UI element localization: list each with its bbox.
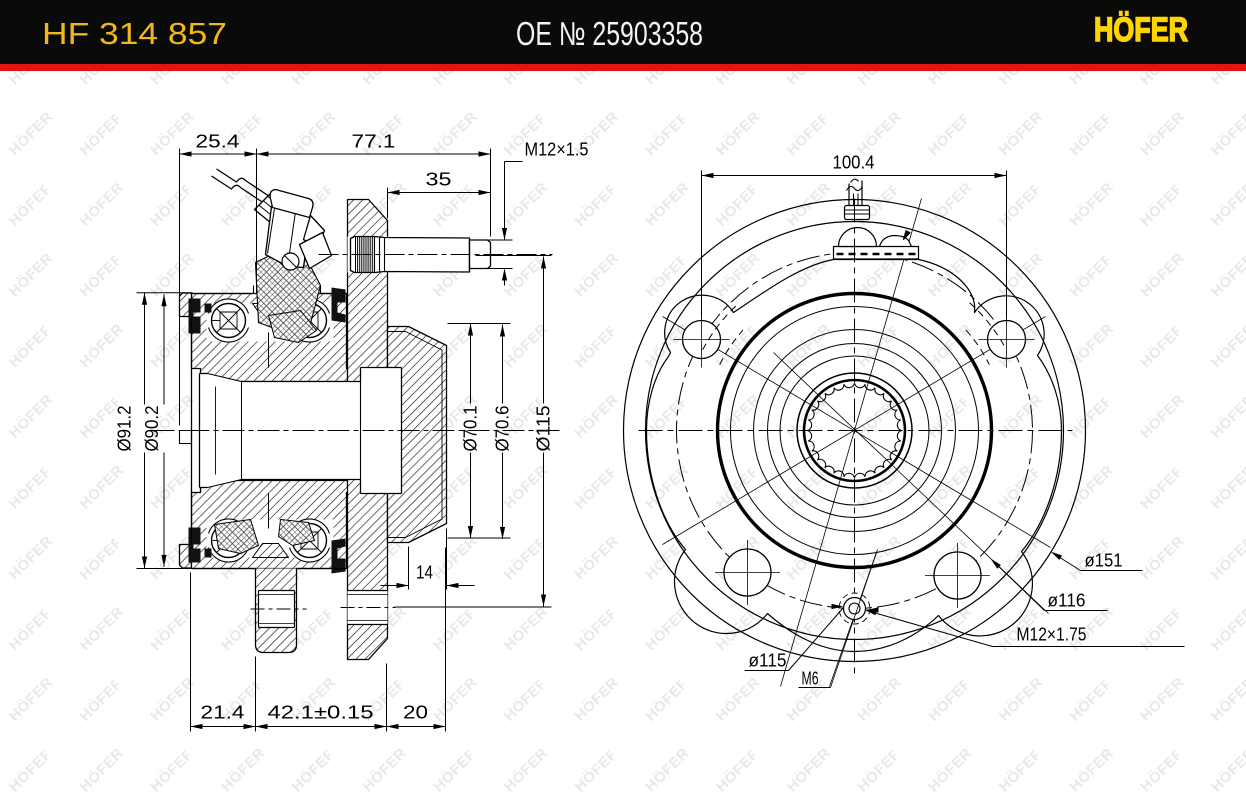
svg-text:HF 314 857: HF 314 857 [42, 16, 227, 51]
svg-text:77.1: 77.1 [352, 132, 396, 152]
svg-text:M12×1.5: M12×1.5 [525, 140, 589, 160]
svg-text:100.4: 100.4 [833, 153, 875, 173]
svg-text:ø115: ø115 [749, 651, 787, 671]
svg-text:20: 20 [403, 703, 428, 723]
svg-text:ø151: ø151 [1085, 551, 1123, 571]
svg-text:Ø91.2: Ø91.2 [115, 406, 135, 452]
svg-text:42.1±0.15: 42.1±0.15 [268, 703, 374, 723]
svg-text:Ø115: Ø115 [534, 406, 554, 452]
svg-text:21.4: 21.4 [201, 703, 245, 723]
svg-text:35: 35 [426, 170, 452, 190]
svg-text:Ø90.2: Ø90.2 [142, 406, 162, 452]
svg-text:OE № 25903358: OE № 25903358 [516, 15, 703, 52]
svg-text:ø116: ø116 [1048, 591, 1086, 611]
svg-text:M6: M6 [802, 669, 819, 689]
svg-text:Ø70.6: Ø70.6 [493, 406, 513, 452]
svg-text:HÖFER: HÖFER [1094, 11, 1188, 49]
svg-text:25.4: 25.4 [196, 132, 240, 152]
svg-text:Ø70.1: Ø70.1 [461, 406, 481, 452]
svg-text:M12×1.75: M12×1.75 [1017, 625, 1087, 645]
svg-text:14: 14 [416, 563, 433, 583]
